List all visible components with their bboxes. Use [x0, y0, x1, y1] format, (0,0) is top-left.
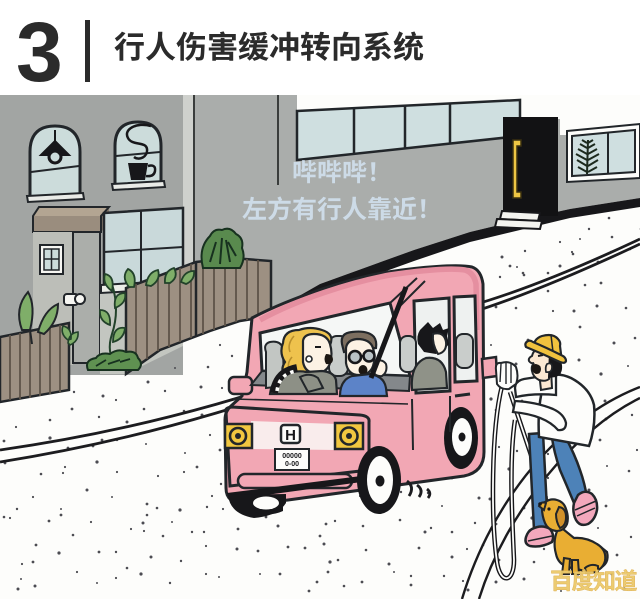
svg-text:0-00: 0-00	[285, 461, 299, 468]
svg-text:3: 3	[16, 5, 63, 99]
svg-text:00000: 00000	[282, 453, 302, 460]
svg-text:H: H	[285, 427, 296, 444]
